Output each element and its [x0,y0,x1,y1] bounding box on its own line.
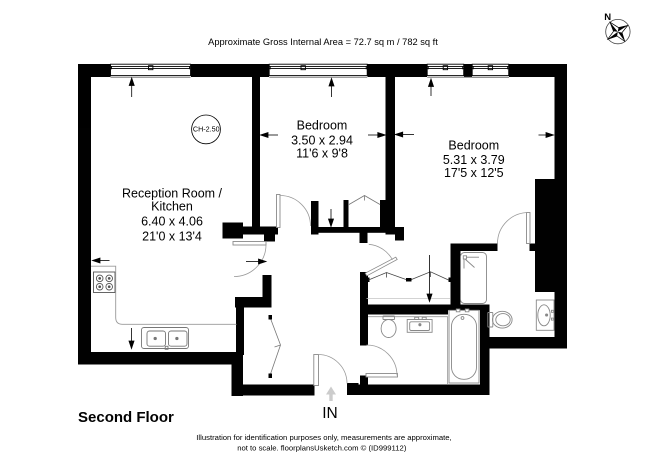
svg-text:CH-2.50: CH-2.50 [193,125,220,134]
svg-text:Reception Room /: Reception Room / [122,186,223,200]
svg-text:21'0 x 13'4: 21'0 x 13'4 [142,230,202,244]
svg-text:Illustration for identificatio: Illustration for identification purposes… [196,433,451,442]
svg-text:Second Floor: Second Floor [78,409,174,426]
svg-text:11'6 x 9'8: 11'6 x 9'8 [296,147,348,161]
svg-text:IN: IN [322,405,338,422]
svg-text:6.40 x 4.06: 6.40 x 4.06 [141,215,203,229]
svg-text:17'5 x 12'5: 17'5 x 12'5 [444,166,504,180]
svg-text:Approximate Gross Internal Are: Approximate Gross Internal Area = 72.7 s… [208,37,438,47]
svg-text:5.31 x 3.79: 5.31 x 3.79 [443,153,505,167]
svg-text:not to scale. floorplansUsketc: not to scale. floorplansUsketch.com © (I… [237,444,407,453]
svg-text:N: N [604,12,611,23]
svg-text:3.50 x 2.94: 3.50 x 2.94 [291,133,353,147]
svg-text:Bedroom: Bedroom [297,118,348,132]
svg-text:Bedroom: Bedroom [448,139,499,153]
svg-text:Kitchen: Kitchen [151,200,193,214]
